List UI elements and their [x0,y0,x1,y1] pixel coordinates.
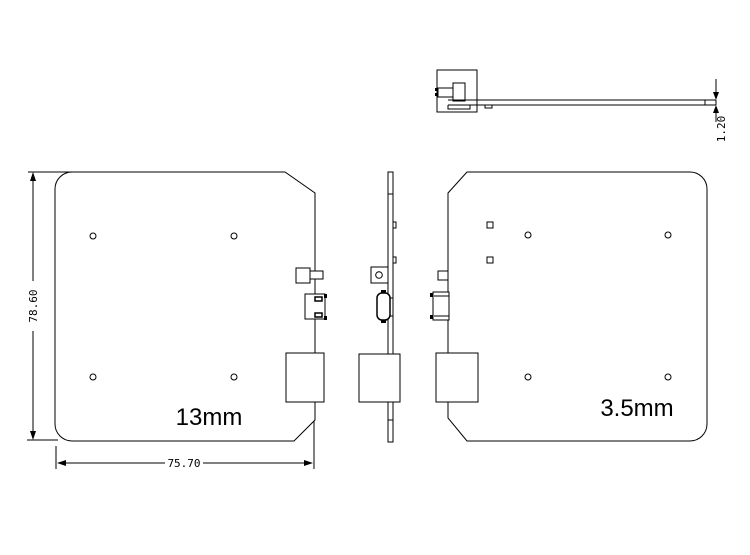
mounting-hole [525,232,531,238]
pad-square [487,222,493,228]
component-block [436,353,478,402]
top-profile-view [435,70,716,112]
dimension-value-thickness: 1.20 [715,116,728,143]
push-button-side [371,267,388,283]
component-block [286,353,324,402]
front-view-plate-3_5mm: 3.5mm [430,172,707,441]
plate-outline [55,172,315,441]
usb-mount-tab [430,315,433,319]
dimension-thickness: 1.20 [713,79,728,142]
connector-housing-outline [437,70,477,112]
solder-nub [393,222,396,228]
component-block-profile [453,83,465,101]
push-button-tab [438,271,448,280]
usb-mount-tab [381,290,386,293]
cad-drawing-canvas: 1.20 13mm 78.60 [0,0,750,555]
dimension-arrow-left [57,460,66,466]
engineering-drawing: 1.20 13mm 78.60 [0,0,750,555]
usb-mount-tab [430,293,433,297]
board-step [448,105,470,109]
mounting-hole [665,232,671,238]
component-block-side [359,354,400,402]
mounting-hole [665,374,671,380]
solder-nub [393,257,396,263]
mounting-hole [90,233,96,239]
dimension-arrow-down [713,92,719,100]
front-view-plate-13mm: 13mm [55,172,327,441]
plate-thickness-label: 13mm [176,404,243,431]
push-button-body [296,268,310,283]
usb-pin-nub [435,88,438,91]
usb-connector-profile [438,88,453,97]
mounting-hole [231,233,237,239]
pad-square [487,257,493,263]
dimension-arrow-up [30,172,36,181]
dimension-arrow-down [30,431,36,440]
mounting-hole [525,374,531,380]
dimension-value-width: 75.70 [167,457,200,470]
side-profile-view [359,172,400,442]
mounting-hole [231,374,237,380]
usb-pad [315,297,322,301]
usb-mount-tab [324,294,327,298]
dimension-height: 78.60 [26,172,72,440]
usb-pad [315,313,322,317]
mounting-hole [90,374,96,380]
usb-connector-side [377,293,390,320]
dimension-value-height: 78.60 [27,289,40,322]
dimension-arrow-right [304,460,313,466]
dimension-arrow-up [713,105,719,113]
push-button-plunger [310,271,323,279]
plate-thickness-label: 3.5mm [600,395,673,422]
usb-pin-nub [435,93,438,96]
usb-mount-tab [324,316,327,320]
usb-mount-tab [381,320,386,323]
